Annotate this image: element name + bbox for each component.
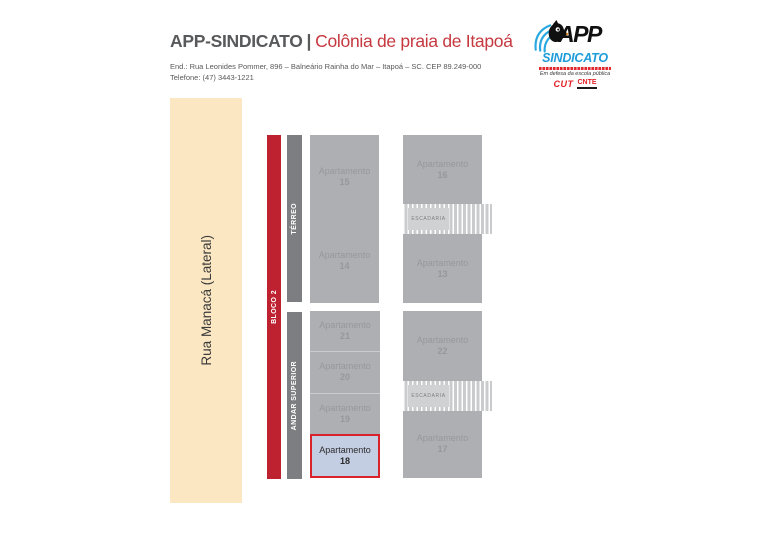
apartment-16: Apartamento 16 bbox=[403, 135, 482, 204]
title-org: APP-SINDICATO bbox=[170, 31, 303, 51]
apartment-label: Apartamento bbox=[417, 433, 469, 444]
apartment-number: 18 bbox=[340, 456, 350, 467]
title-separator: | bbox=[303, 31, 316, 51]
andar-superior-strip: ANDAR SUPERIOR bbox=[287, 312, 302, 479]
apartment-number: 13 bbox=[437, 269, 447, 280]
apartment-19: Apartamento 19 bbox=[310, 393, 380, 434]
apartment-21: Apartamento 21 bbox=[310, 311, 380, 351]
apartment-label: Apartamento bbox=[417, 159, 469, 170]
apartment-14: Apartamento 14 bbox=[310, 219, 379, 303]
apartment-number: 21 bbox=[340, 331, 350, 342]
apartment-label: Apartamento bbox=[319, 250, 371, 261]
apartment-number: 19 bbox=[340, 414, 350, 425]
cut-logo: CUT bbox=[553, 79, 573, 89]
apartment-15: Apartamento 15 bbox=[310, 135, 379, 219]
logo-sindicato-text: SINDICATO bbox=[535, 51, 615, 65]
logo-affiliations: CUT CNTE bbox=[535, 79, 615, 89]
bloco-2-strip: BLOCO 2 bbox=[267, 135, 281, 479]
street-strip: Rua Manacá (Lateral) bbox=[170, 98, 242, 503]
logo-fine-print-line bbox=[539, 67, 611, 70]
andar-superior-label: ANDAR SUPERIOR bbox=[291, 361, 298, 430]
terreo-strip: TÉRREO bbox=[287, 135, 302, 302]
apartment-label: Apartamento bbox=[319, 166, 371, 177]
address-block: End.: Rua Leonides Pommer, 896 – Balneár… bbox=[170, 62, 481, 83]
title-subtitle: Colônia de praia de Itapoá bbox=[315, 31, 513, 51]
logo-tagline: Em defesa da escola pública bbox=[535, 71, 615, 77]
phone-line: Telefone: (47) 3443-1221 bbox=[170, 73, 481, 84]
apartment-number: 20 bbox=[340, 372, 350, 383]
apartment-22: Apartamento 22 bbox=[403, 311, 482, 380]
street-label: Rua Manacá (Lateral) bbox=[199, 235, 214, 366]
terreo-left-column: Apartamento 15 Apartamento 14 bbox=[310, 135, 379, 303]
andar-left-column: Apartamento 21 Apartamento 20 Apartament… bbox=[310, 311, 380, 478]
apartment-label: Apartamento bbox=[319, 361, 371, 372]
apartment-17: Apartamento 17 bbox=[403, 410, 482, 478]
apartment-13: Apartamento 13 bbox=[403, 235, 482, 303]
bloco-label: BLOCO 2 bbox=[271, 290, 278, 324]
stairs-label: ESCADARIA bbox=[408, 208, 449, 230]
apartment-number: 17 bbox=[437, 444, 447, 455]
page: APP-SINDICATO|Colônia de praia de Itapoá… bbox=[0, 0, 768, 543]
apartment-label: Apartamento bbox=[417, 335, 469, 346]
apartment-20: Apartamento 20 bbox=[310, 351, 380, 392]
logo-app-text: APP bbox=[558, 23, 601, 46]
apartment-number: 16 bbox=[437, 170, 447, 181]
apartment-label: Apartamento bbox=[319, 403, 371, 414]
apartment-number: 15 bbox=[339, 177, 349, 188]
apartment-label: Apartamento bbox=[319, 320, 371, 331]
terreo-label: TÉRREO bbox=[291, 203, 298, 235]
stairs-terreo: ESCADARIA bbox=[403, 204, 492, 234]
page-title: APP-SINDICATO|Colônia de praia de Itapoá bbox=[170, 31, 513, 52]
app-sindicato-logo: APP SINDICATO Em defesa da escola públic… bbox=[533, 16, 617, 90]
cnte-logo: CNTE bbox=[577, 79, 596, 89]
apartment-number: 14 bbox=[339, 261, 349, 272]
stairs-andar-superior: ESCADARIA bbox=[403, 381, 492, 411]
stairs-label: ESCADARIA bbox=[408, 385, 449, 407]
apartment-label: Apartamento bbox=[417, 258, 469, 269]
apartment-label: Apartamento bbox=[319, 445, 371, 456]
address-line: End.: Rua Leonides Pommer, 896 – Balneár… bbox=[170, 62, 481, 73]
apartment-18-highlighted: Apartamento 18 bbox=[310, 434, 380, 478]
apartment-number: 22 bbox=[437, 346, 447, 357]
